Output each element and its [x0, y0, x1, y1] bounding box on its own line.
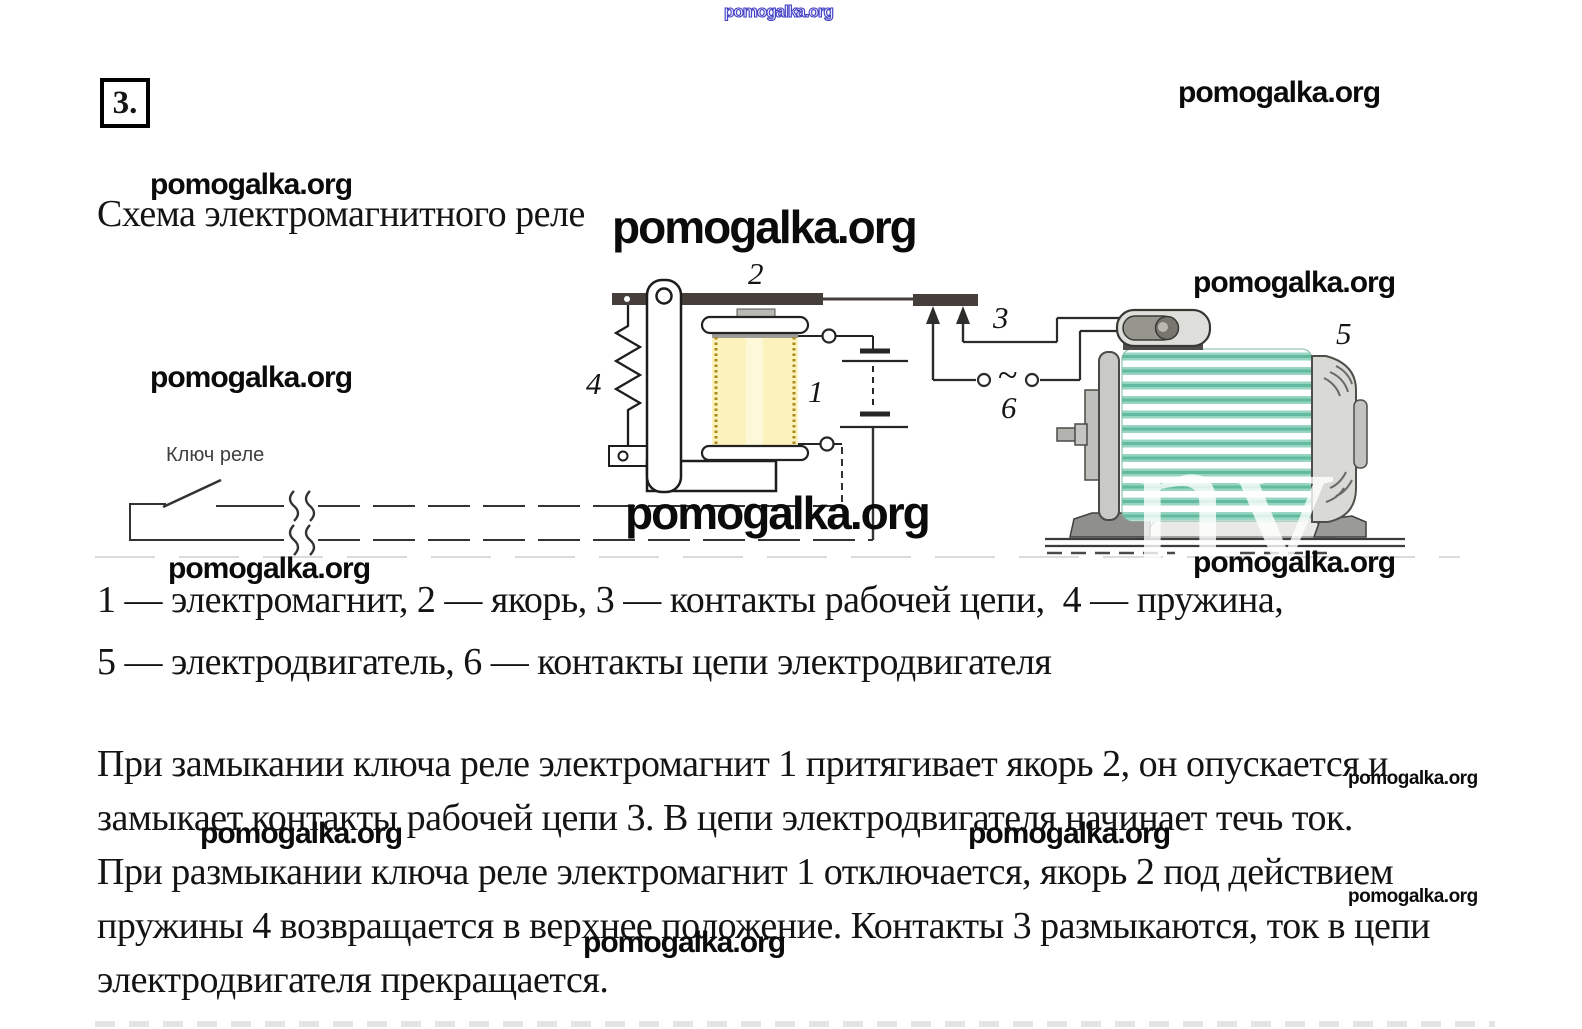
scanned-textbook-page: pomogalka.org 3. pomogalka.org pomogalka…	[0, 0, 1582, 1029]
working-contacts	[926, 306, 1150, 386]
armature-bar	[612, 293, 978, 306]
watermark: pomogalka.org	[625, 486, 929, 540]
watermark: pomogalka.org	[200, 817, 402, 851]
figure-title: Схема электромагнитного реле	[97, 192, 585, 236]
ac-symbol: ~	[998, 354, 1017, 396]
watermark: pomogalka.org	[1178, 76, 1380, 110]
watermark: pomogalka.org	[1193, 266, 1395, 300]
label-electromagnet: 1	[808, 374, 824, 410]
caption-line-1: 1 — электромагнит, 2 — якорь, 3 — контак…	[97, 578, 1283, 622]
relay-key-label: Ключ реле	[166, 444, 264, 467]
watermark: pomogalka.org	[612, 200, 916, 254]
spring	[609, 305, 651, 466]
caption-line-2: 5 — электродвигатель, 6 — контакты цепи …	[97, 640, 1051, 684]
relay-yoke	[647, 280, 776, 492]
body-line: электродвигателя прекращается.	[97, 958, 608, 1002]
watermark: pomogalka.org	[968, 817, 1170, 851]
watermark: pomogalka.org	[150, 361, 352, 395]
watermark: pomogalka.org	[724, 2, 833, 22]
exercise-number-badge: 3.	[100, 78, 150, 128]
body-line: При замыкании ключа реле электромагнит 1…	[97, 742, 1388, 786]
label-working-contacts: 3	[993, 300, 1009, 336]
electromagnet-coil	[702, 309, 808, 460]
watermark: pomogalka.org	[1193, 546, 1395, 580]
label-armature: 2	[748, 256, 764, 292]
label-spring: 4	[586, 366, 602, 402]
watermark: pomogalka.org	[583, 926, 785, 960]
label-motor: 5	[1336, 316, 1352, 352]
body-line: При размыкании ключа реле электромагнит …	[97, 850, 1393, 894]
scan-noise-strip	[95, 1021, 1495, 1027]
